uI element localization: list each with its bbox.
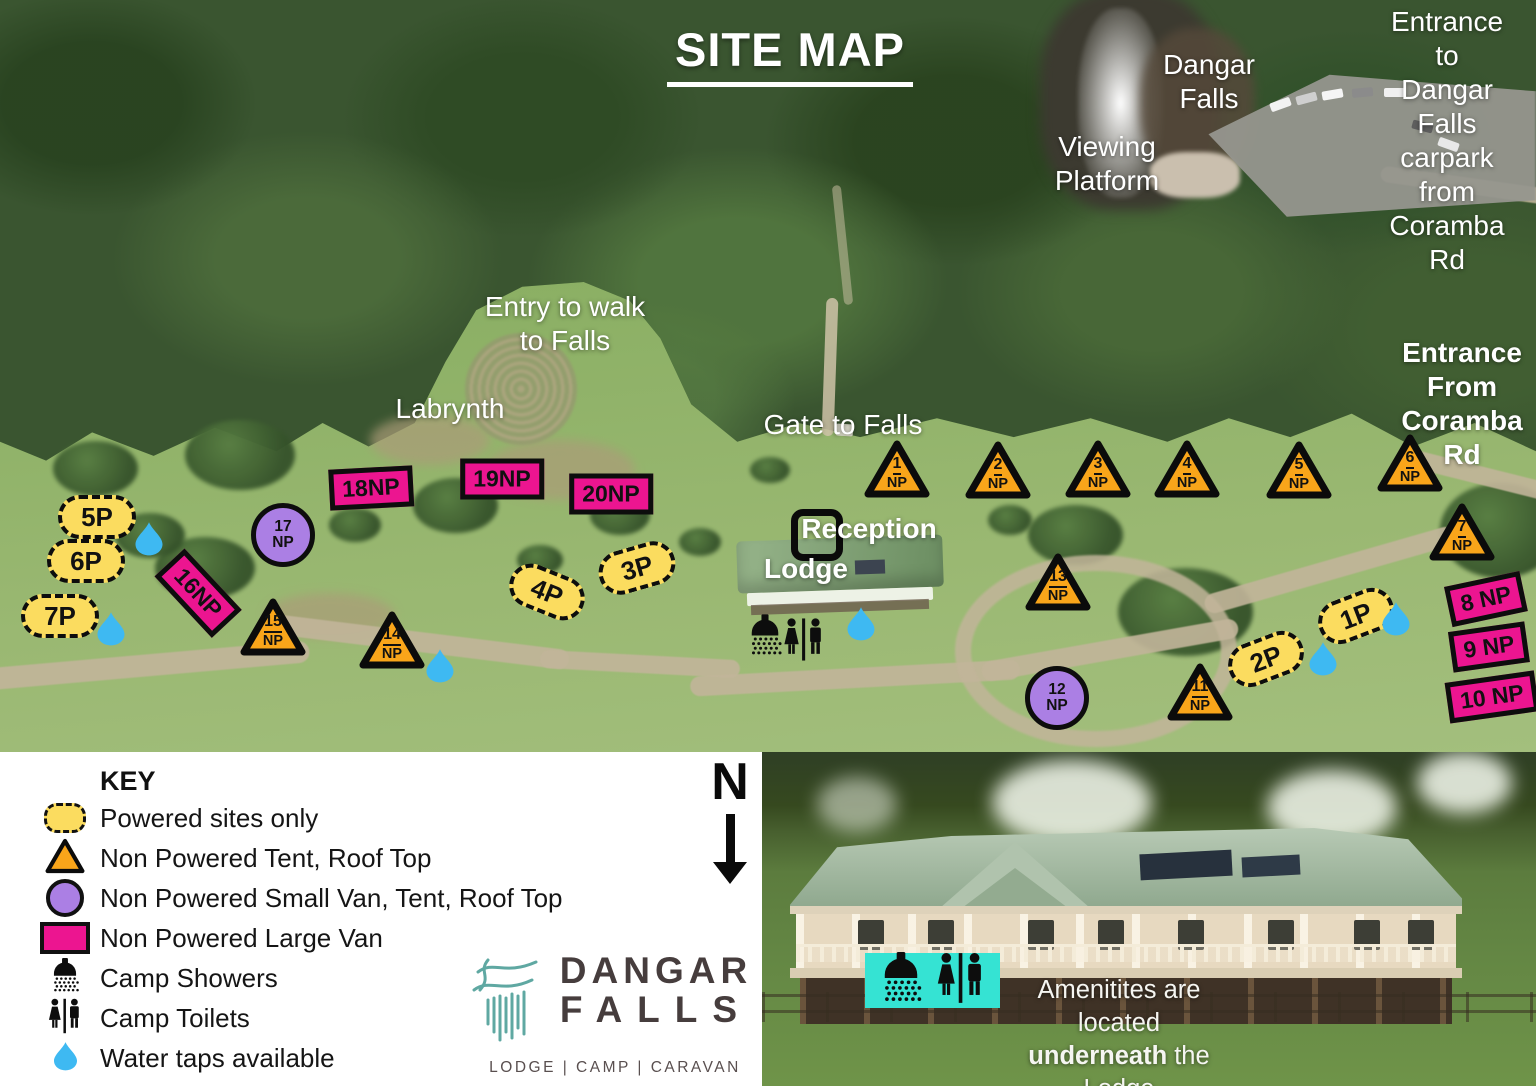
map-label-labrynth: Labrynth bbox=[396, 392, 505, 426]
key-item-label: Non Powered Small Van, Tent, Roof Top bbox=[100, 883, 563, 914]
lodge-photo-roof bbox=[790, 828, 1462, 908]
logo-tagline: LODGE | CAMP | CARAVAN bbox=[470, 1059, 760, 1077]
powered-site-3P: 3P bbox=[593, 536, 680, 600]
map-label-dangar-falls: Dangar Falls bbox=[1163, 48, 1255, 116]
water-tap-icon bbox=[1310, 641, 1337, 681]
map-label-viewing-platform: Viewing Platform bbox=[1055, 130, 1159, 198]
dangar-falls-logo: DANGAR FALLS LODGE | CAMP | CARAVAN bbox=[470, 952, 760, 1077]
powered-site-6P: 6P bbox=[47, 539, 125, 583]
camp-shower-icon bbox=[50, 958, 80, 998]
small-van-site-12: 12NP bbox=[1025, 666, 1089, 730]
tent-triangle-icon bbox=[45, 838, 85, 879]
toilets-icon bbox=[782, 618, 826, 667]
shower-icon bbox=[747, 614, 783, 661]
key-heading: KEY bbox=[100, 766, 156, 797]
tent-site-13: 13NP bbox=[1025, 552, 1091, 612]
solar-panel bbox=[1242, 854, 1301, 877]
lodge-photo-eave bbox=[790, 906, 1462, 914]
amenities-line2-bold: underneath bbox=[1028, 1042, 1167, 1070]
lodge-solar-panel bbox=[855, 559, 885, 574]
tent-site-14: 14NP bbox=[359, 610, 425, 670]
water-drop-icon bbox=[54, 1041, 77, 1076]
page-title: SITE MAP bbox=[667, 22, 913, 87]
key-item-small-van-circle: Non Powered Small Van, Tent, Roof Top bbox=[30, 878, 563, 918]
aerial-map: 5P6P7P4P3P2P1P18NP19NP20NP16NP8 NP9 NP10… bbox=[0, 0, 1536, 752]
large-van-site-8NP: 8 NP bbox=[1444, 571, 1528, 627]
powered-site-4P: 4P bbox=[503, 557, 592, 627]
tent-site-15: 15NP bbox=[240, 597, 306, 657]
tent-site-5: 5NP bbox=[1266, 440, 1332, 500]
powered-oval-icon bbox=[44, 803, 86, 833]
key-item-tent-triangle: Non Powered Tent, Roof Top bbox=[30, 838, 563, 878]
key-item-label: Powered sites only bbox=[100, 803, 318, 834]
powered-site-5P: 5P bbox=[58, 495, 136, 539]
water-tap-icon bbox=[1383, 601, 1410, 641]
north-compass: N bbox=[694, 756, 766, 884]
camp-toilets-icon bbox=[47, 998, 83, 1039]
large-van-rect-icon bbox=[40, 922, 90, 954]
large-van-site-9NP: 9 NP bbox=[1448, 621, 1530, 672]
solar-panel bbox=[1139, 850, 1232, 881]
field-tree bbox=[679, 528, 721, 556]
north-arrow-head bbox=[713, 862, 747, 884]
logo-name-line2: FALLS bbox=[552, 989, 760, 1032]
sky-patch bbox=[817, 777, 897, 832]
key-item-label: Camp Showers bbox=[100, 963, 278, 994]
tent-site-4: 4NP bbox=[1154, 439, 1220, 499]
site-map-page: 5P6P7P4P3P2P1P18NP19NP20NP16NP8 NP9 NP10… bbox=[0, 0, 1536, 1086]
field-tree bbox=[750, 457, 790, 483]
water-tap-icon bbox=[136, 521, 163, 561]
tent-site-1: 1NP bbox=[864, 439, 930, 499]
field-tree bbox=[988, 505, 1032, 535]
key-item-label: Water taps available bbox=[100, 1043, 335, 1074]
tent-site-3: 3NP bbox=[1065, 439, 1131, 499]
shower-icon bbox=[879, 952, 923, 1009]
tent-site-11: 11NP bbox=[1167, 662, 1233, 722]
powered-site-7P: 7P bbox=[21, 594, 99, 638]
sky-patch bbox=[1417, 752, 1512, 814]
water-tap-icon bbox=[98, 611, 125, 651]
field-tree bbox=[53, 441, 138, 496]
viewing-platform-structure bbox=[1150, 152, 1240, 198]
large-van-site-10NP: 10 NP bbox=[1445, 670, 1536, 723]
map-label-entrance-from-coramba: Entrance From Coramba Rd bbox=[1401, 336, 1522, 472]
map-label-entry-to-walk: Entry to walk to Falls bbox=[485, 290, 645, 358]
key-item-powered-oval: Powered sites only bbox=[30, 798, 563, 838]
key-item-label: Camp Toilets bbox=[100, 1003, 250, 1034]
map-label-gate-to-falls: Gate to Falls bbox=[764, 408, 923, 442]
water-tap-icon bbox=[848, 606, 875, 646]
toilets-icon bbox=[935, 952, 987, 1009]
key-item-label: Non Powered Large Van bbox=[100, 923, 383, 954]
small-van-circle-icon bbox=[46, 879, 84, 917]
key-item-label: Non Powered Tent, Roof Top bbox=[100, 843, 431, 874]
north-letter: N bbox=[694, 756, 766, 808]
parked-car bbox=[1352, 87, 1374, 98]
field-tree bbox=[185, 420, 295, 490]
large-van-site-18NP: 18NP bbox=[328, 465, 414, 510]
logo-name-line1: DANGAR bbox=[552, 952, 760, 989]
tent-site-2: 2NP bbox=[965, 440, 1031, 500]
map-label-lodge: Lodge bbox=[764, 552, 848, 586]
large-van-site-19NP: 19NP bbox=[460, 459, 544, 500]
amenities-icon-box bbox=[865, 953, 1000, 1008]
map-label-reception: Reception bbox=[801, 512, 936, 546]
large-van-site-20NP: 20NP bbox=[569, 474, 653, 515]
field-tree bbox=[329, 508, 381, 542]
map-label-entrance-to-carpark: Entrance to Dangar Falls carpark from Co… bbox=[1389, 5, 1504, 277]
tent-site-7: 7NP bbox=[1429, 502, 1495, 562]
amenities-note: Amenitites are located underneath the Lo… bbox=[998, 974, 1240, 1086]
waterfall-logo-icon bbox=[470, 952, 544, 1051]
water-tap-icon bbox=[427, 648, 454, 688]
amenities-line1: Amenitites are located bbox=[1038, 976, 1201, 1037]
north-arrow-line bbox=[726, 814, 735, 862]
dirt-road bbox=[540, 650, 741, 678]
lodge-photo-inset: Amenitites are located underneath the Lo… bbox=[762, 752, 1536, 1086]
key-panel: KEY Powered sites onlyNon Powered Tent, … bbox=[0, 752, 762, 1086]
small-van-site-17: 17NP bbox=[251, 503, 315, 567]
